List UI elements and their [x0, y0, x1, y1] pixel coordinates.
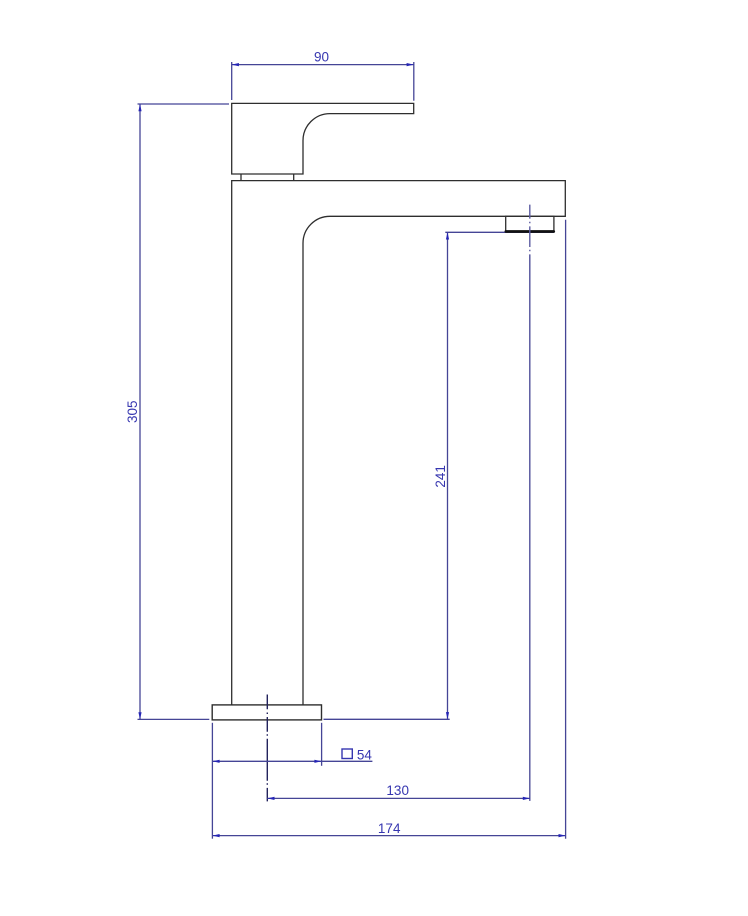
svg-text:130: 130	[386, 783, 409, 798]
svg-text:241: 241	[433, 465, 448, 488]
svg-text:174: 174	[378, 821, 401, 836]
svg-text:90: 90	[314, 50, 329, 65]
svg-text:54: 54	[357, 747, 373, 762]
svg-text:305: 305	[125, 400, 140, 423]
